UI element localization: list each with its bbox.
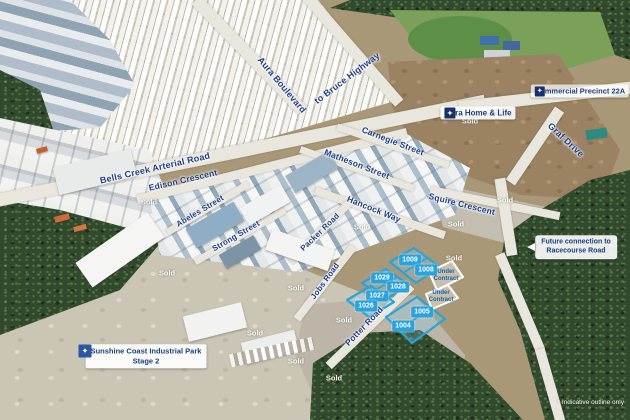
callout-future-connection: Future connection to Racecourse Road <box>535 235 617 259</box>
sold-marker: Sold <box>446 254 462 263</box>
footnote: * Indicative outline only <box>558 399 625 406</box>
under-contract-line2: Contract <box>429 297 454 303</box>
under-contract-line2: Contract <box>434 276 459 282</box>
sold-marker: Sold <box>497 196 513 205</box>
callout-commercial-precinct: ✦ Commercial Precinct 22A <box>531 85 629 98</box>
lot-tag-1004: 1004 <box>392 321 414 332</box>
under-contract-line1: Under <box>432 290 449 296</box>
sold-marker: Sold <box>336 316 352 325</box>
callout-stage2: Sunshine Coast Industrial Park Stage 2 <box>86 344 207 368</box>
lot-tag-1026: 1026 <box>355 301 377 312</box>
future-connection-line1: Future connection to <box>541 238 611 247</box>
sold-marker: Sold <box>354 223 370 232</box>
sold-marker: Sold <box>159 269 175 278</box>
sold-marker: Sold <box>288 284 304 293</box>
precinct-logo-icon: ✦ <box>535 86 545 96</box>
stage2-line2: Stage 2 <box>133 356 160 366</box>
stage2-line1: Sunshine Coast Industrial Park <box>91 346 202 356</box>
sold-marker: Sold <box>326 374 342 383</box>
under-contract-line1: Under <box>437 269 454 275</box>
sold-marker: Sold <box>448 220 464 229</box>
aura-logo-icon: ✦ <box>444 108 455 119</box>
sold-marker: Sold <box>247 329 263 338</box>
lot-tag-1005: 1005 <box>411 307 433 318</box>
under-contract-tag-1: Under Contract <box>434 269 459 283</box>
aerial-courts-blue-2 <box>503 41 520 50</box>
aerial-courts-blue <box>480 36 499 45</box>
sold-marker: Sold <box>288 357 304 366</box>
future-connection-line2: Racecourse Road <box>546 247 605 256</box>
stage2-logo-icon: ✦ <box>79 345 92 358</box>
callout-commercial-precinct-label: Commercial Precinct 22A <box>535 87 625 96</box>
future-connection-arrow-icon <box>527 243 535 251</box>
callout-aura-home-life: ✦ Aura Home & Life <box>440 107 515 120</box>
aerial-masterplan-map: Bells Creek Arterial Road Edison Crescen… <box>0 0 630 420</box>
lot-tag-1028: 1028 <box>387 282 409 293</box>
under-contract-tag-2: Under Contract <box>429 290 454 304</box>
sold-marker: Sold <box>141 198 157 207</box>
